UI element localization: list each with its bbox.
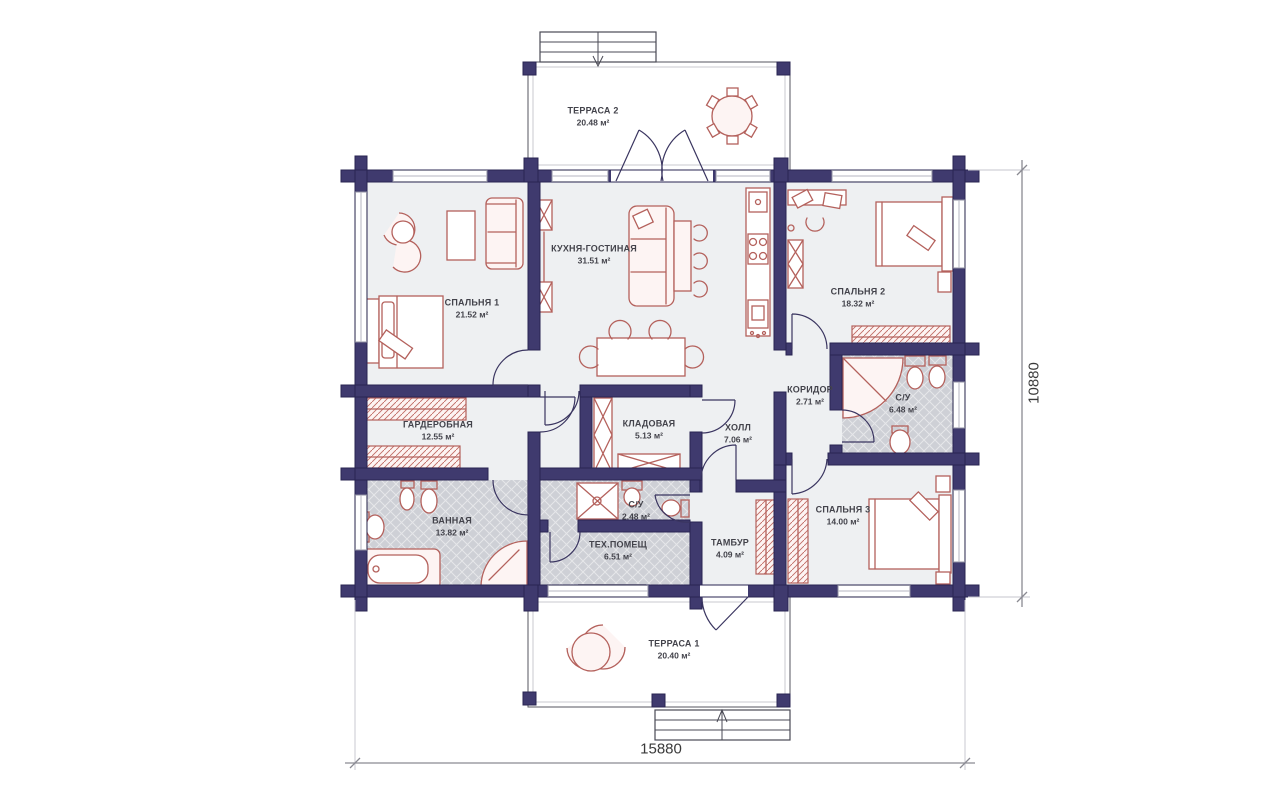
room-label-kuhnya-gostinaya: КУХНЯ-ГОСТИНАЯ 31.51 м² (551, 244, 637, 267)
room-name: С/У (622, 500, 650, 512)
dimension-width-label: 15880 (640, 741, 682, 758)
room-name: С/У (889, 393, 917, 405)
room-name: ХОЛЛ (724, 423, 752, 435)
room-label-spalnya-1: СПАЛЬНЯ 1 21.52 м² (445, 298, 500, 321)
room-name: ВАННАЯ (432, 516, 472, 528)
room-area: 20.48 м² (567, 117, 618, 128)
floor-plan-drawing (0, 0, 1280, 800)
room-name: СПАЛЬНЯ 2 (831, 287, 886, 299)
room-area: 13.82 м² (432, 527, 472, 538)
room-label-vannaya: ВАННАЯ 13.82 м² (432, 516, 472, 539)
room-name: ТАМБУР (711, 538, 749, 550)
room-name: КЛАДОВАЯ (623, 419, 676, 431)
room-name: ТЕРРАСА 2 (567, 106, 618, 118)
room-name: ГАРДЕРОБНАЯ (403, 420, 473, 432)
room-area: 18.32 м² (831, 298, 886, 309)
room-label-su-1: С/У 6.48 м² (889, 393, 917, 416)
room-name: КУХНЯ-ГОСТИНАЯ (551, 244, 637, 256)
room-label-terrassa-1: ТЕРРАСА 1 20.40 м² (648, 639, 699, 662)
room-area: 20.40 м² (648, 650, 699, 661)
room-area: 12.55 м² (403, 431, 473, 442)
room-name: СПАЛЬНЯ 1 (445, 298, 500, 310)
room-label-holl: ХОЛЛ 7.06 м² (724, 423, 752, 446)
room-area: 4.09 м² (711, 549, 749, 560)
room-area: 2.71 м² (787, 396, 833, 407)
room-area: 6.51 м² (589, 551, 647, 562)
room-label-teh-pomesch: ТЕХ.ПОМЕЩ 6.51 м² (589, 540, 647, 563)
floor-plan: ТЕРРАСА 2 20.48 м² СПАЛЬНЯ 1 21.52 м² КУ… (0, 0, 1280, 800)
room-area: 31.51 м² (551, 255, 637, 266)
room-label-su-2: С/У 2.48 м² (622, 500, 650, 523)
room-area: 21.52 м² (445, 309, 500, 320)
room-area: 5.13 м² (623, 430, 676, 441)
room-label-tambur: ТАМБУР 4.09 м² (711, 538, 749, 561)
room-name: ТЕРРАСА 1 (648, 639, 699, 651)
room-label-koridor: КОРИДОР 2.71 м² (787, 385, 833, 408)
room-name: ТЕХ.ПОМЕЩ (589, 540, 647, 552)
room-label-terrassa-2: ТЕРРАСА 2 20.48 м² (567, 106, 618, 129)
room-label-spalnya-2: СПАЛЬНЯ 2 18.32 м² (831, 287, 886, 310)
room-area: 7.06 м² (724, 434, 752, 445)
room-area: 14.00 м² (816, 516, 871, 527)
dimension-height-label: 10880 (1026, 362, 1043, 404)
room-name: СПАЛЬНЯ 3 (816, 505, 871, 517)
room-name: КОРИДОР (787, 385, 833, 397)
room-area: 6.48 м² (889, 404, 917, 415)
room-label-garderobnaya: ГАРДЕРОБНАЯ 12.55 м² (403, 420, 473, 443)
room-label-spalnya-3: СПАЛЬНЯ 3 14.00 м² (816, 505, 871, 528)
room-area: 2.48 м² (622, 511, 650, 522)
room-label-kladovaya: КЛАДОВАЯ 5.13 м² (623, 419, 676, 442)
